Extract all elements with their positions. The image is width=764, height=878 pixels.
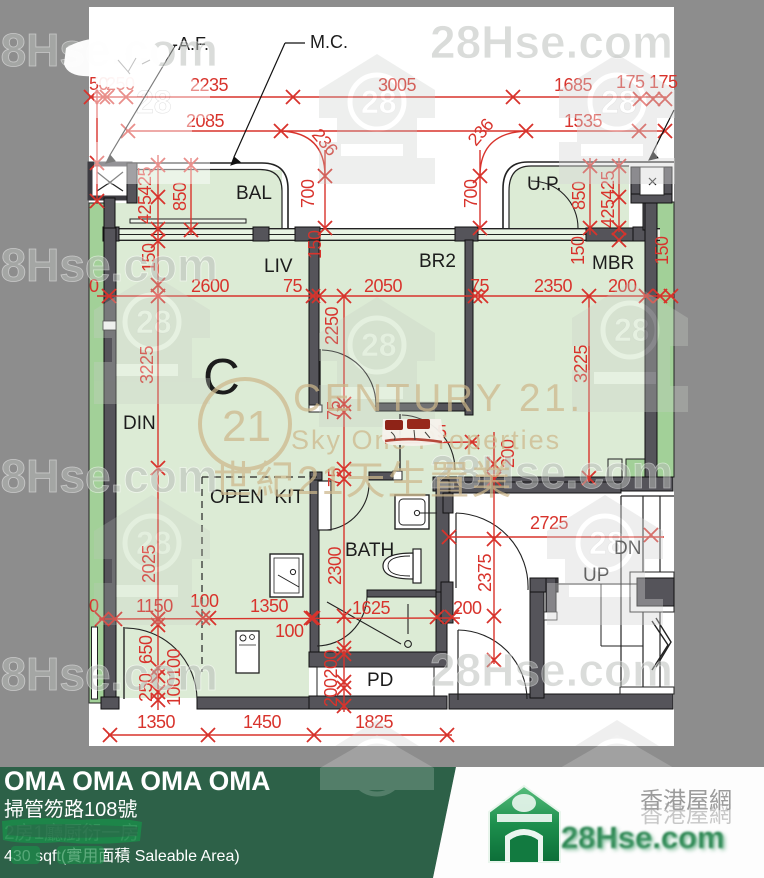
svg-text:200: 200 (453, 598, 482, 618)
svg-text:150: 150 (652, 236, 672, 265)
svg-text:28Hse.com: 28Hse.com (0, 648, 218, 700)
svg-text:MBR: MBR (592, 253, 634, 274)
svg-text:2350: 2350 (534, 276, 573, 296)
svg-text:75: 75 (283, 276, 303, 296)
svg-text:1350: 1350 (137, 712, 176, 732)
svg-text:世紀21天生置業: 世紀21天生置業 (213, 459, 514, 503)
svg-text:150: 150 (305, 230, 325, 259)
svg-text:2050: 2050 (364, 276, 403, 296)
svg-text:BAL: BAL (236, 183, 272, 204)
svg-text:1350: 1350 (250, 596, 289, 616)
svg-text:1625: 1625 (352, 598, 391, 618)
svg-text:掃管笏路108號: 掃管笏路108號 (4, 798, 137, 821)
svg-text:75: 75 (470, 276, 490, 296)
svg-text:香港屋網: 香港屋網 (640, 801, 732, 827)
svg-text:28: 28 (136, 84, 172, 120)
svg-text:28Hse.com: 28Hse.com (430, 644, 673, 696)
svg-text:150: 150 (568, 236, 588, 265)
svg-text:28: 28 (601, 84, 637, 120)
svg-text:28: 28 (614, 312, 650, 348)
svg-text:28Hse.com: 28Hse.com (0, 239, 218, 291)
svg-text:200200: 200200 (321, 649, 341, 707)
svg-text:CENTURY 21.: CENTURY 21. (293, 377, 584, 420)
svg-text:1450: 1450 (243, 712, 282, 732)
svg-text:28Hse.com: 28Hse.com (430, 16, 673, 68)
svg-text:2300: 2300 (325, 546, 345, 585)
svg-text:OMA OMA OMA OMA: OMA OMA OMA OMA (4, 766, 270, 796)
svg-text:28: 28 (136, 304, 172, 340)
svg-text:2375: 2375 (475, 553, 495, 592)
svg-text:850: 850 (569, 181, 589, 210)
svg-text:100: 100 (275, 621, 304, 641)
svg-text:M.C.: M.C. (310, 32, 348, 52)
svg-text:21: 21 (222, 402, 271, 451)
svg-text:PD: PD (367, 670, 393, 691)
svg-text:28: 28 (602, 753, 635, 786)
svg-text:700: 700 (298, 179, 318, 208)
svg-text:U.P.: U.P. (527, 174, 562, 195)
svg-text:BATH: BATH (345, 540, 394, 561)
svg-text:700: 700 (461, 179, 481, 208)
svg-text:28Hse.com: 28Hse.com (0, 450, 218, 502)
svg-text:28: 28 (361, 327, 397, 363)
svg-text:LIV: LIV (264, 256, 293, 277)
svg-text:850: 850 (170, 182, 190, 211)
svg-text:BR2: BR2 (419, 251, 456, 272)
svg-text:28: 28 (136, 525, 172, 561)
svg-text:28: 28 (362, 753, 395, 786)
svg-text:28Hse.com: 28Hse.com (563, 822, 727, 857)
svg-text:DIN: DIN (123, 413, 156, 434)
svg-text:28: 28 (589, 525, 625, 561)
svg-text:28: 28 (361, 84, 397, 120)
